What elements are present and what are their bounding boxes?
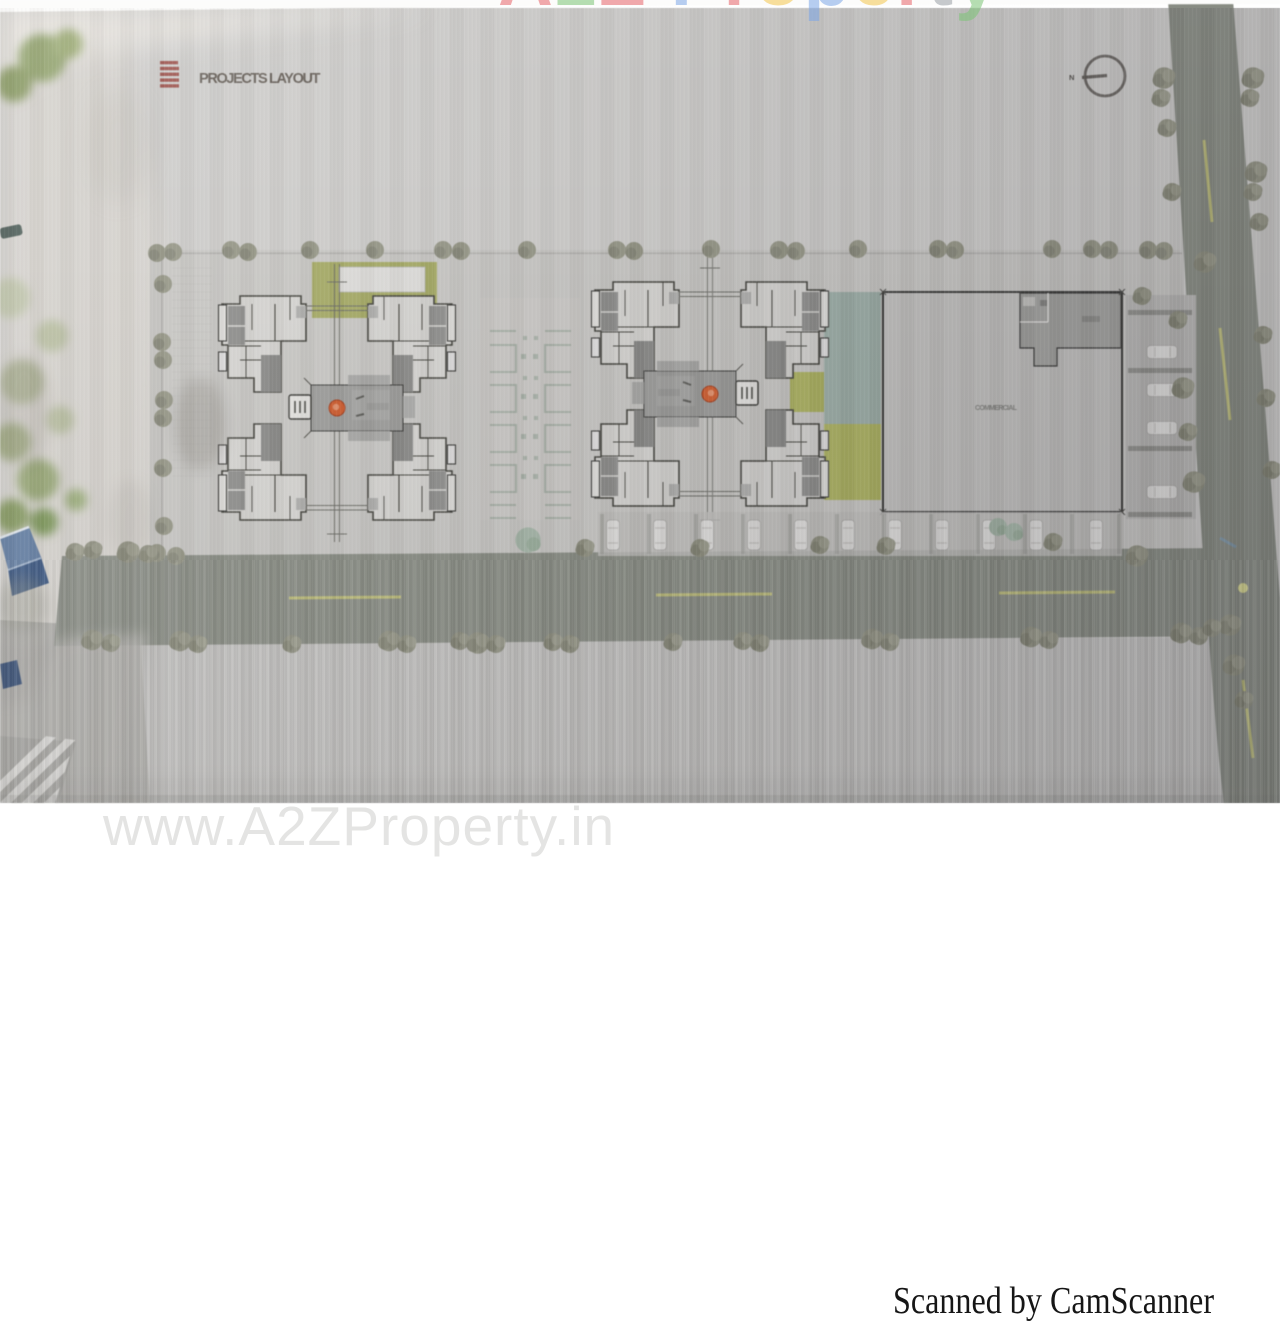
svg-text:COMMERCIAL: COMMERCIAL: [975, 405, 1018, 412]
svg-text:N: N: [1069, 73, 1074, 82]
svg-text:PROJECTS LAYOUT: PROJECTS LAYOUT: [199, 71, 321, 87]
